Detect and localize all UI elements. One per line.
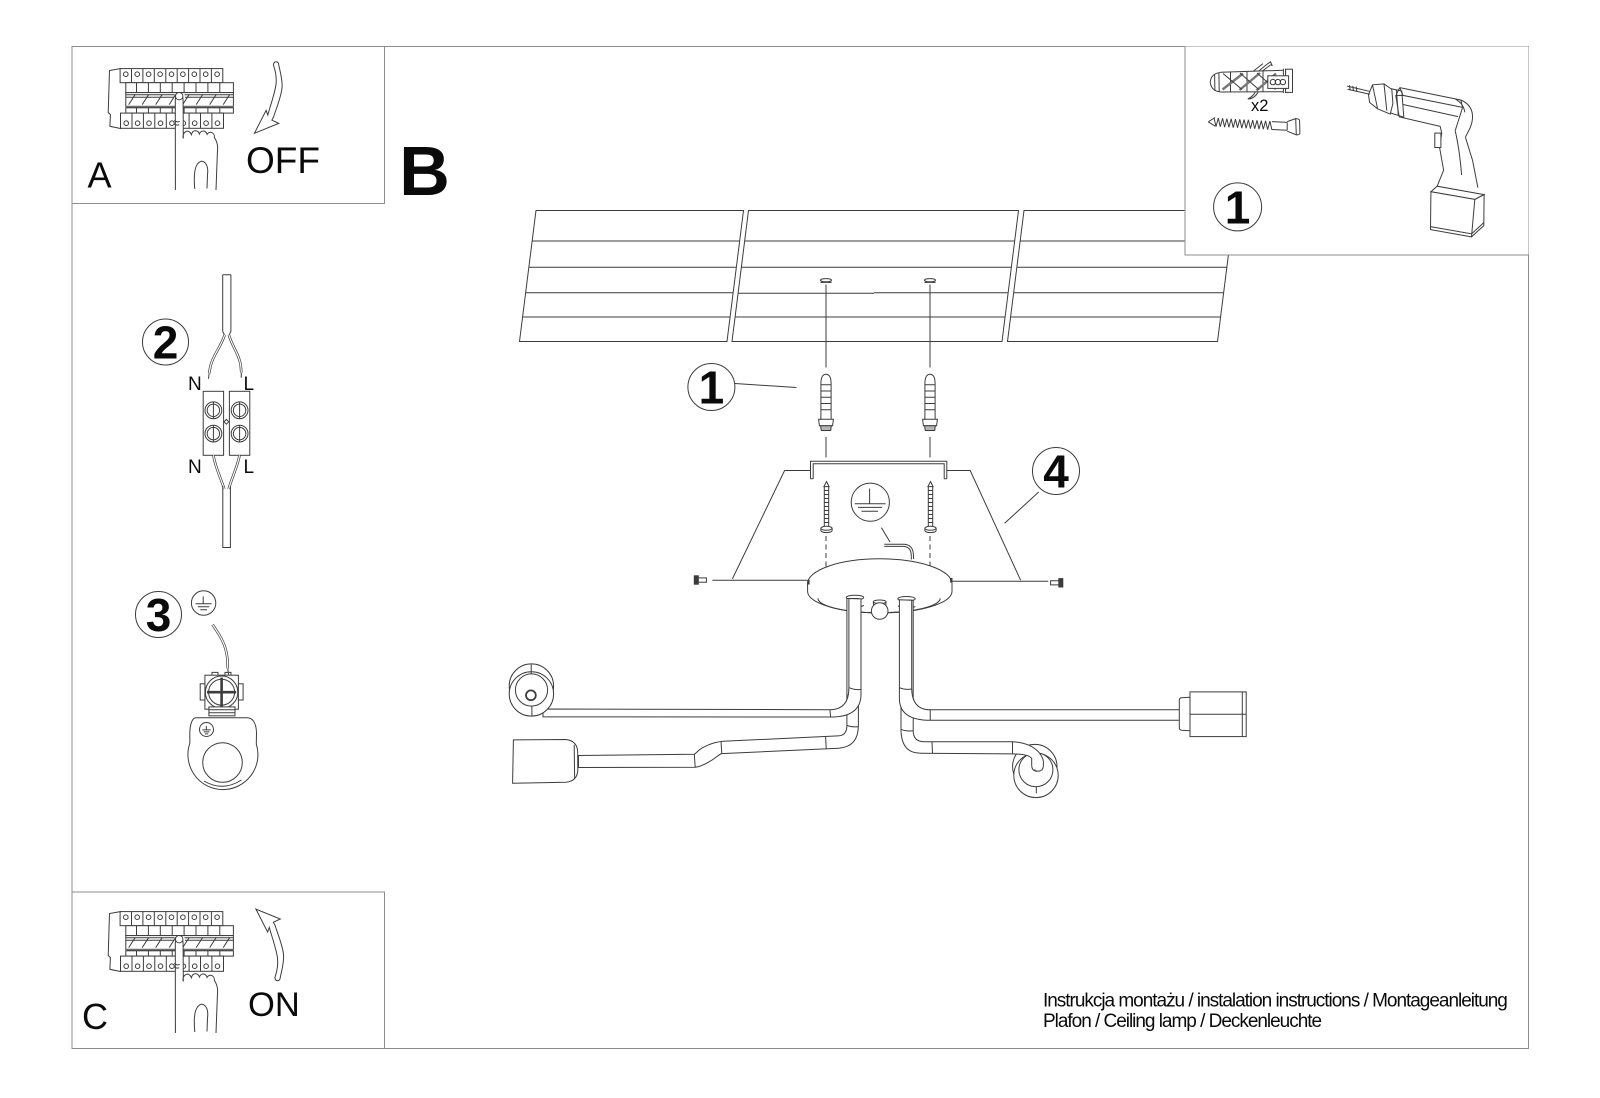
svg-text:L: L xyxy=(244,457,255,478)
svg-text:4: 4 xyxy=(1043,445,1069,497)
svg-text:OFF: OFF xyxy=(246,140,320,181)
svg-text:Instrukcja montażu / instalati: Instrukcja montażu / instalation instruc… xyxy=(1043,991,1507,1012)
svg-text:N: N xyxy=(188,457,202,478)
svg-text:3: 3 xyxy=(146,589,172,641)
svg-text:N: N xyxy=(188,374,202,395)
svg-text:Plafon / Ceiling lamp / Decken: Plafon / Ceiling lamp / Deckenleuchte xyxy=(1043,1011,1321,1032)
svg-text:A: A xyxy=(88,155,112,196)
svg-text:C: C xyxy=(82,996,108,1037)
svg-text:x2: x2 xyxy=(1251,97,1268,115)
svg-text:1: 1 xyxy=(1225,181,1251,233)
svg-text:2: 2 xyxy=(153,316,179,368)
svg-text:ON: ON xyxy=(248,986,300,1024)
svg-text:1: 1 xyxy=(699,361,725,413)
svg-text:B: B xyxy=(399,132,450,210)
